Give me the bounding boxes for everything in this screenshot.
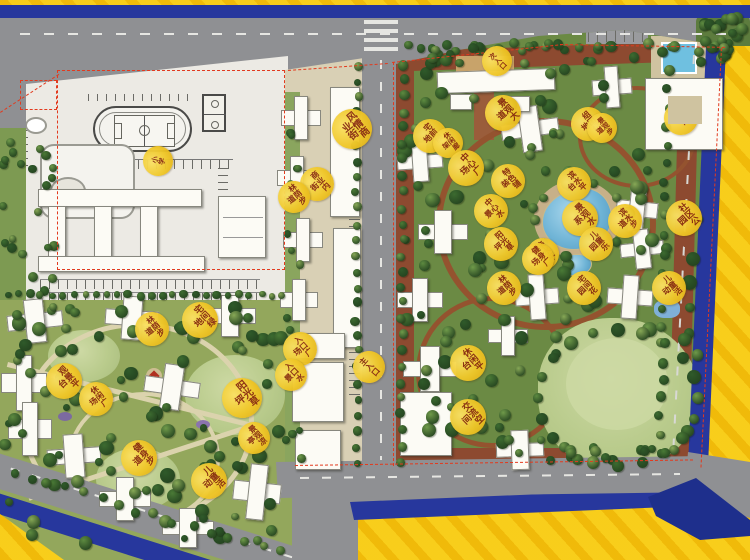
plan-label-xiaoxue: 小学: [140, 143, 177, 180]
plan-label-xiuxian-pingtai: 休闲平台: [443, 338, 494, 389]
plan-label-ertong-huodong-d: 儿童活动: [645, 264, 693, 312]
master-plan-canvas: 小学风情商业街商业内街林荫步道宅间绿地林荫步道观景平台休闲广场健身步道阳光草坪儿…: [0, 0, 750, 560]
plan-label-zhaijian-huayuan: 宅间花园: [560, 264, 608, 312]
plan-label-fengqing-shangyejie: 风情商业街: [324, 101, 380, 157]
plan-labels-layer: 小学风情商业街商业内街林荫步道宅间绿地林荫步道观景平台休闲广场健身步道阳光草坪儿…: [0, 0, 750, 560]
plan-label-shequ-gongyuan: 社区公园: [659, 193, 710, 244]
plan-label-zhaijian-lvdi: 宅间绿地: [175, 295, 226, 346]
plan-label-jiaoliu-kongjian: 交流空间: [443, 392, 494, 443]
plan-label-ertong-huodong-c: 儿童活动: [184, 456, 235, 507]
plan-label-jingguan-ting: 景观凉亭: [231, 415, 276, 460]
plan-label-ci-rukou: 次入口: [476, 40, 518, 82]
plan-label-jianshen-budao: 健身步道: [114, 433, 165, 484]
plan-label-linyin-budao-d: 林荫步道: [480, 264, 528, 312]
plan-label-jingguan-dadao: 景观大道: [478, 88, 529, 139]
plan-label-zhu-rukou: 主入口: [346, 344, 391, 389]
plan-label-yangguang-caoping-c: 阳光草坪: [214, 370, 270, 426]
plan-label-linyin-budao-c: 林荫步道: [128, 305, 176, 353]
clubhouse-courtyard: [668, 96, 702, 124]
